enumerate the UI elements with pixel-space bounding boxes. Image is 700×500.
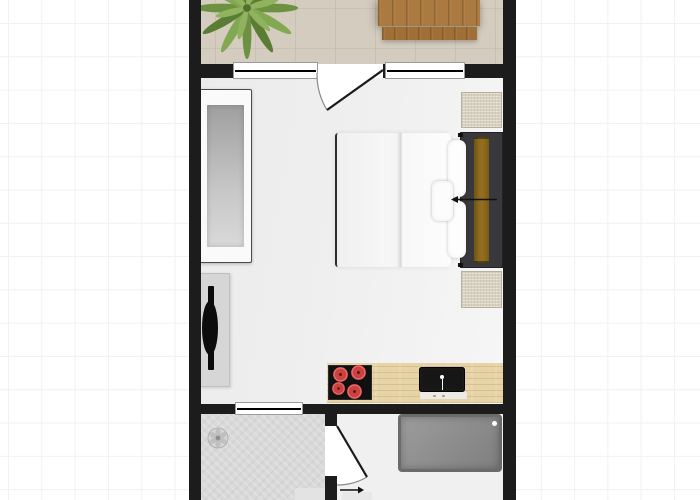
knob-icon	[442, 395, 445, 398]
bedside-mat-top	[461, 92, 502, 128]
balcony-window-left	[233, 62, 318, 79]
window-glass-line	[237, 408, 301, 410]
burner-icon	[332, 382, 345, 395]
shower-drain-icon	[207, 427, 229, 449]
burner-icon	[347, 384, 362, 399]
window-glass-line	[235, 70, 316, 72]
faucet-stem	[442, 379, 444, 390]
wall	[189, 0, 201, 500]
wood-bench	[382, 27, 477, 40]
entrance-arrow-icon	[337, 483, 365, 497]
wall	[465, 64, 503, 78]
bedside-mat-bottom	[461, 271, 502, 308]
burner-icon	[333, 367, 348, 382]
bed-direction-arrow-icon	[447, 193, 501, 206]
bathtub	[398, 414, 502, 472]
floorplan-canvas	[0, 0, 700, 500]
drain-dot-icon	[492, 421, 497, 426]
cooktop	[328, 365, 372, 400]
burner-icon	[351, 365, 366, 380]
shower-doormat	[295, 488, 325, 500]
window-glass-line	[387, 70, 463, 72]
interior-window	[235, 402, 303, 415]
interior-door-swing-icon	[323, 418, 375, 488]
balcony-window-right	[385, 62, 465, 79]
palm-plant-icon	[193, 0, 301, 62]
sink-cabinet-front	[420, 392, 467, 399]
sofa-seat	[207, 105, 244, 247]
wood-table	[378, 0, 480, 26]
floorplan	[189, 0, 516, 500]
wall	[503, 0, 516, 500]
knob-icon	[433, 395, 436, 398]
sink	[419, 367, 465, 392]
wall	[201, 64, 233, 78]
balcony-door-swing-icon	[314, 60, 389, 116]
tv-icon	[200, 273, 230, 387]
sofa	[199, 89, 252, 263]
duvet-fold-seam	[397, 133, 403, 267]
